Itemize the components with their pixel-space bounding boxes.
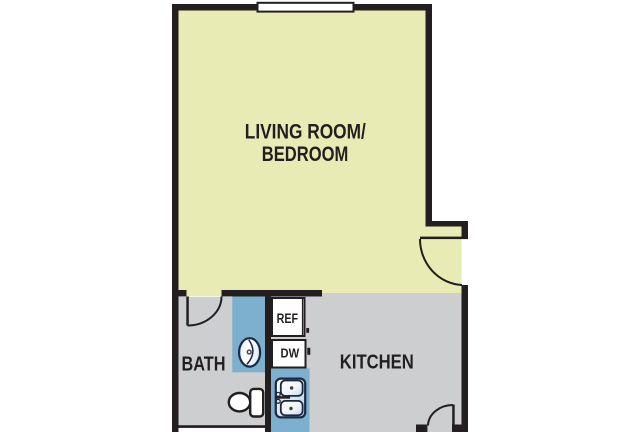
svg-text:REF: REF: [277, 311, 298, 326]
svg-text:KITCHEN: KITCHEN: [340, 352, 414, 374]
svg-text:BATH: BATH: [182, 354, 226, 376]
svg-text:DW: DW: [281, 346, 300, 361]
svg-text:BEDROOM: BEDROOM: [262, 142, 349, 166]
svg-text:LIVING ROOM/: LIVING ROOM/: [245, 119, 366, 143]
